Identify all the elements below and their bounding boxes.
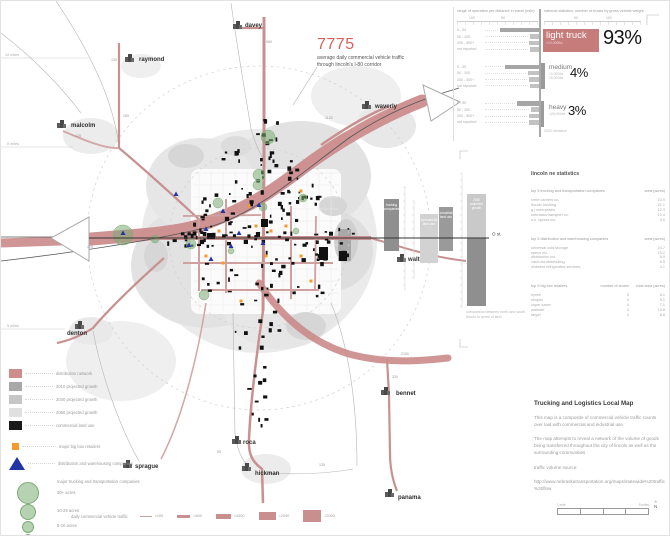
legend-leader [28,463,55,464]
bigbox-retailer-marker [285,225,288,228]
range-leader [485,122,527,123]
range-leader [485,116,527,117]
description-title: Trucking and Logistics Local Map [534,400,665,407]
range-bar [529,77,539,82]
scale-segment [604,509,627,514]
traffic-bar-icon [216,514,231,519]
range-of-operation-chart: 0 - 5050 - 200200 - 500+not reported0 - … [457,27,539,137]
medium-truck-bar [541,63,545,89]
range-row-label: 200 - 500+ [457,41,483,45]
trucking-company-marker [213,198,223,208]
weight-axis-tick-100: 100 [606,16,612,20]
bigbox-retailer-marker [265,255,268,258]
traffic-legend-item: >2000 [303,510,335,522]
company-value: 4.1 [660,265,665,270]
light-truck-pct: 93% [603,27,642,50]
legend-swatch [9,395,22,404]
scale-bar-segments [557,508,649,515]
mile-marker-label: 5 miles [7,324,19,328]
trucking-company-marker [293,228,299,234]
legend-area-label: 2040 projected growth [56,397,97,402]
company-name: midwest refrigerated services [531,265,580,270]
town-label-raymond: raymond [139,57,165,63]
traffic-bar-label: <1000 [234,514,245,518]
truck-weight-panel: range of operation per distance in trave… [453,5,669,145]
range-leader [485,79,527,80]
range-row-label: 0 - 50 [457,28,483,32]
bigbox-retailer-marker [255,225,258,228]
stats-table: top 5 trucking and transportation compan… [531,189,665,223]
comparison-note-1: comparison between north and south [466,310,525,314]
weight-chart-title: national statistics: number of trucks by… [544,9,666,14]
range-row-label: 50 - 200 [457,35,483,39]
bigbox-retailer-marker [300,255,303,258]
town-icon-davey [233,21,242,29]
traffic-legend-items: <100<500<1000<2000>2000 [140,510,349,522]
traffic-legend-item: <500 [177,514,202,518]
range-chart-title: range of operation per distance in trave… [457,9,535,14]
source-url: http://www.nebraskatransportation.org/ma… [534,478,665,492]
range-leader [485,42,527,43]
traffic-legend-label: daily commercial vehicle traffic [71,514,128,519]
legend-swatch [9,369,22,378]
legend-swatch [9,408,22,417]
legend-bigbox-row: major big box retailers [9,441,259,452]
range-bar [531,107,539,112]
range-leader [485,36,528,37]
road-volume-label: 135 [319,463,325,467]
legend-area-label: 2010 projected growth [56,384,97,389]
range-row-label: 50 - 200 [457,108,483,112]
medium-truck-pct: 4% [570,65,588,80]
trucking-company-marker [151,235,159,243]
range-bar [529,41,539,46]
bigbox-retailer-marker [300,190,303,193]
bigbox-retailer-icon [12,443,19,450]
legend-area-label: 2060 projected growth [56,410,97,415]
legend-area-items: distribution network2010 projected growt… [9,367,259,432]
circles-title: major trucking and transportation compan… [57,479,140,484]
bigbox-retailer-marker [205,255,208,258]
road-volume-label: 2150 [401,352,409,356]
road-volume-label: 125 [75,134,81,138]
retail-row: target38.8 [531,313,665,318]
table-header: top 5 distribution and warehousing compa… [531,237,665,241]
range-row-label: 0 - 50 [457,101,483,105]
range-row-label: 0 - 50 [457,65,483,69]
range-axis-tick-50: 50 [501,16,505,20]
range-leader [485,49,528,50]
range-bar [500,28,539,33]
highlight-caption-1: average daily commercial vehicle traffic [317,55,405,61]
town-label-panama: panama [398,495,421,501]
trucking-company-marker [228,248,234,254]
trucking-company-marker [299,194,307,202]
town-label-denton: denton [67,331,87,337]
trucking-company-marker [261,130,275,144]
trucking-company-marker [253,180,263,190]
legend-area-row: 2010 projected growth [9,380,259,393]
range-axis-tick-100: 100 [469,16,475,20]
description-para-1: This map is a composite of commercial ve… [534,414,665,428]
big-box-retailers-table: top 5 big box retailersnumber of storest… [531,284,665,318]
trucking-company-marker [253,169,265,181]
table-row: midwest refrigerated services4.1 [531,265,665,270]
range-bar [505,65,539,70]
traffic-bar-label: <2000 [279,514,290,518]
town-label-waverly: waverly [374,104,398,110]
retail-header-area: total area (acres) [629,284,665,288]
traffic-bar-label: >2000 [324,514,335,518]
legend-leader [25,373,53,374]
range-bar [517,101,539,106]
range-row-label: 50 - 200 [457,71,483,75]
bigbox-retailer-marker [248,205,251,208]
retail-header-stores: number of stores [597,284,629,288]
traffic-bar-label: <100 [155,514,164,518]
legend-leader [25,412,53,413]
table-row: u.s. xpress inc.9.6 [531,218,665,223]
legend-leader [25,386,53,387]
legend-area-label: commercial land use [56,423,94,428]
heavy-truck-label: heavy >26,000lbs [549,105,566,116]
retail-header-name: top 5 big box retailers [531,284,597,288]
scale-segment [581,509,604,514]
town-icon-malcolm [57,120,66,128]
traffic-bar-label: <500 [193,514,202,518]
retailer-stores: 3 [597,313,629,318]
range-leader [485,30,498,31]
heavy-truck-bar [541,101,544,127]
road-volume-label: 980 [266,40,272,44]
scale-left-label: 1 mile [557,503,566,507]
o-street-label: O st. [492,232,502,237]
map-description: Trucking and Logistics Local Map This ma… [534,400,665,499]
range-bar [530,84,539,89]
range-row-label: not reported [457,47,483,51]
comparison-note-2: lincoln in acres of land [466,315,502,319]
company-name: u.s. xpress inc. [531,218,556,223]
range-bar [530,34,539,39]
traffic-legend-item: <2000 [259,512,290,520]
lincoln-stats-title: lincoln ne statistics [531,171,665,177]
table-header-value: area (acres) [645,189,665,193]
town-icon-panama [385,489,394,497]
table-header-name: top 5 distribution and warehousing compa… [531,237,608,241]
traffic-bar-icon [140,516,152,517]
light-truck-label: light truck [546,31,596,41]
weight-axis-tick-50: 50 [574,16,578,20]
range-group: 0 - 5050 - 200200 - 500+not reported [457,27,539,53]
legend-swatch [9,382,22,391]
highlight-number: 7775 [317,36,355,53]
range-group: 0 - 5050 - 200200 - 500+not reported [457,100,539,126]
legend-area-label: distribution network [56,371,92,376]
town-icon-walton [397,254,406,262]
legend-warehouse-row: distribution and warehousing companies [9,456,259,471]
traffic-bar-icon [259,512,276,520]
legend-leader [25,425,53,426]
range-row: not reported [457,119,539,125]
highlight-caption-2: through lincoln's I-80 corridor [317,62,382,68]
road-volume-label: 225 [87,245,93,249]
company-circle-icon [17,482,39,504]
town-label-davey: davey [245,23,263,29]
legend-company-circles: major trucking and transportation compan… [9,479,259,536]
heavy-weight-1: >26,000lbs [549,112,566,116]
legend-leader [22,446,56,447]
company-circle-icon [20,504,36,520]
light-truck-bar: light truck <10,000lbs [543,29,599,52]
road-volume-label: 265 [123,114,129,118]
table-header-value: area (acres) [645,237,665,241]
bigbox-retailer-marker [240,300,243,303]
retailer-name: target [531,313,597,318]
medium-weight-2: 26,000lbs [549,76,572,80]
range-bar [529,114,539,119]
range-group: 0 - 5050 - 200200 - 500+not reported [457,64,539,90]
range-leader [485,103,515,104]
range-bar [530,47,539,52]
legend-area-row: 2060 projected growth [9,406,259,419]
trucking-company-marker [199,290,209,300]
bigbox-retailer-marker [218,230,221,233]
circle-size-label: 5-10 acres [57,523,77,528]
stats-table: top 5 distribution and warehousing compa… [531,237,665,271]
heavy-name: heavy [549,104,566,111]
traffic-bar-icon [303,510,321,522]
range-row-label: 200 - 500+ [457,78,483,82]
range-leader [485,109,529,110]
company-circle-icon [22,521,34,533]
bigbox-label: major big box retailers [59,444,100,449]
legend-leader [25,399,53,400]
trucking-company-marker [186,239,196,249]
scale-segment [558,509,581,514]
road-volume-label: 130 [111,58,117,62]
table-header-name: top 5 trucking and transportation compan… [531,189,605,193]
warehouse-triangle-icon [9,457,25,470]
legend-swatch [9,421,22,430]
weight-axis [544,21,641,25]
north-arrow-icon: ^ N [654,501,657,509]
circle-size-label: 30+ acres [57,490,76,495]
town-label-bennet: bennet [396,391,416,397]
range-row: not reported [457,83,539,89]
range-row-label: not reported [457,120,483,124]
range-leader [485,73,526,74]
range-row-label: 200 - 500+ [457,114,483,118]
source-label: traffic volume source: [534,464,665,471]
heavy-truck-pct: 3% [568,103,586,118]
medium-name: medium [549,64,572,71]
lincoln-statistics-panel: lincoln ne statistics top 5 trucking and… [531,171,665,318]
description-para-2: The map attempts to reveal a network of … [534,435,665,456]
medium-truck-label: medium 10,000lbs 26,000lbs [549,65,572,80]
road-volume-label: 330 [392,375,398,379]
mile-marker-label: 5 miles [7,142,19,146]
traffic-volume-legend: daily commercial vehicle traffic <100<50… [71,510,349,522]
light-truck-weight: <10,000lbs [546,41,596,45]
traffic-legend-item: <1000 [216,514,245,519]
bigbox-retailer-marker [310,280,313,283]
range-row: not reported [457,46,539,52]
traffic-bar-icon [177,515,190,518]
range-bar [528,71,539,76]
map-scale-bar: 1 mile 5 miles [557,503,649,515]
range-leader [485,85,528,86]
table-header: top 5 trucking and transportation compan… [531,189,665,193]
retailer-area: 8.8 [629,313,665,318]
mile-marker-lines [1,58,89,329]
bigbox-retailer-marker [222,262,225,265]
road-volume-label: 1120 [325,116,333,120]
panel-divider-left [453,7,454,141]
comparison-bar-label: commercialland use [421,218,438,226]
scale-right-label: 5 miles [639,503,649,507]
scale-segment [626,509,648,514]
statistics-footnote: 2002 statistics [544,129,567,133]
range-bar [529,120,539,125]
range-row-label: not reported [457,84,483,88]
town-label-malcolm: malcolm [71,123,95,129]
company-value: 9.6 [660,218,665,223]
comparison-bar-label: industrialland use [440,211,453,219]
legend-area-row: distribution network [9,367,259,380]
range-axis [457,21,538,25]
north-letter: N [654,505,657,509]
traffic-legend-item: <100 [140,514,164,518]
mile-marker-label: 10 miles [5,53,19,57]
legend-area-row: 2040 projected growth [9,393,259,406]
trucking-logistics-poster: daveyraymondmalcolmwaverlywaltondentonbe… [0,0,670,536]
company-tables: top 5 trucking and transportation compan… [531,189,665,270]
retail-header: top 5 big box retailersnumber of storest… [531,284,665,288]
range-leader [485,66,503,67]
warehouse-label: distribution and warehousing companies [58,461,133,466]
bigbox-retailer-marker [270,230,273,233]
legend-area-row: commercial land use [9,419,259,432]
